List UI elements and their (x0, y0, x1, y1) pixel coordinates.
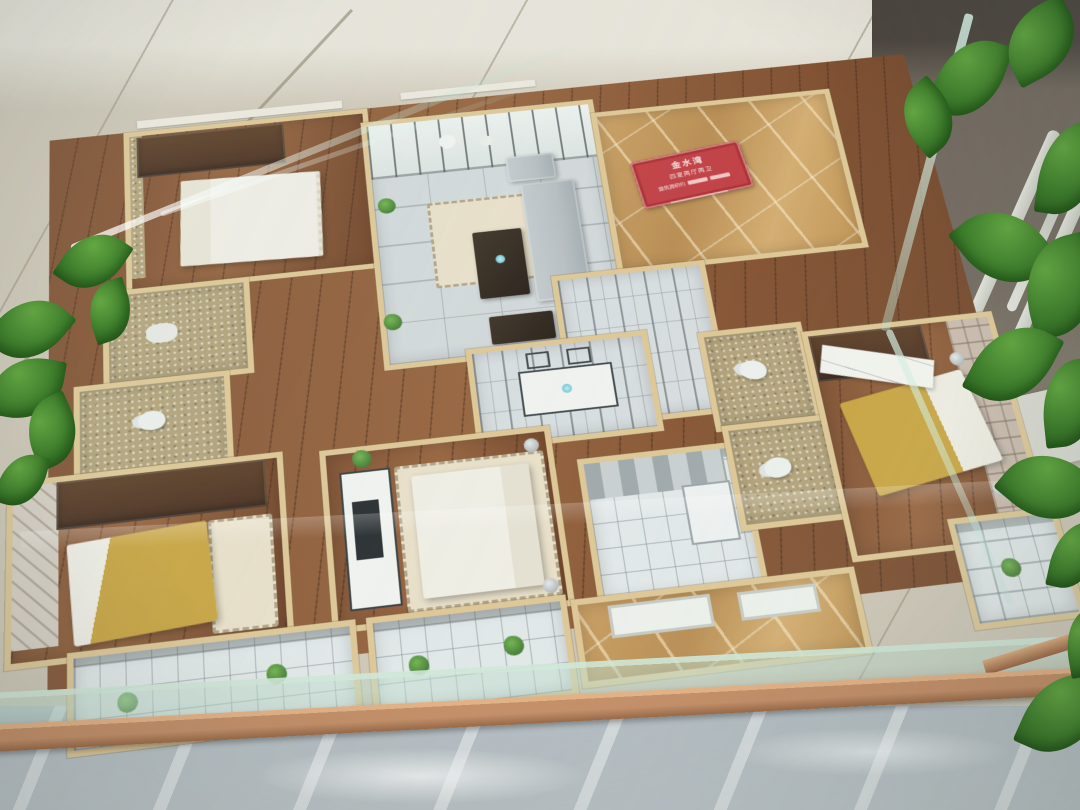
sign-area-value-bar (687, 177, 708, 185)
potted-plant (352, 449, 373, 469)
tv-screen (352, 499, 384, 560)
toilet (138, 409, 166, 431)
project-sign: 金水湾 四室两厅两卫 建筑面积约 (630, 140, 755, 209)
balcony-plant (999, 557, 1023, 578)
tv-console (339, 467, 403, 611)
toilet (740, 360, 767, 381)
armchair (505, 153, 556, 183)
patterned-wallpaper (11, 482, 59, 651)
balcony-plant (503, 635, 526, 657)
table-flowers (561, 383, 572, 393)
bath-fixture (146, 322, 178, 344)
room-bedroom-top-left (123, 108, 383, 294)
sign-area-value-bar (710, 172, 731, 180)
refrigerator (681, 480, 741, 545)
gold-bed (66, 520, 218, 647)
dining-chair (566, 347, 592, 365)
dining-table (518, 362, 619, 417)
skylight-frame (607, 594, 715, 639)
white-bed (411, 463, 545, 599)
wardrobe (136, 123, 286, 178)
potted-plant (377, 197, 396, 214)
potted-plant (383, 313, 403, 331)
white-bed (180, 171, 323, 267)
skylight-frame (737, 583, 822, 621)
flower-centerpiece (495, 254, 506, 263)
coffee-table (472, 228, 530, 299)
room-entry-marble: 金水湾 四室两厅两卫 建筑面积约 (590, 89, 869, 274)
dining-chair (525, 351, 551, 369)
photo-scene: 金水湾 四室两厅两卫 建筑面积约 (0, 0, 1080, 810)
toilet (761, 455, 794, 481)
bedside-rug (208, 513, 279, 634)
